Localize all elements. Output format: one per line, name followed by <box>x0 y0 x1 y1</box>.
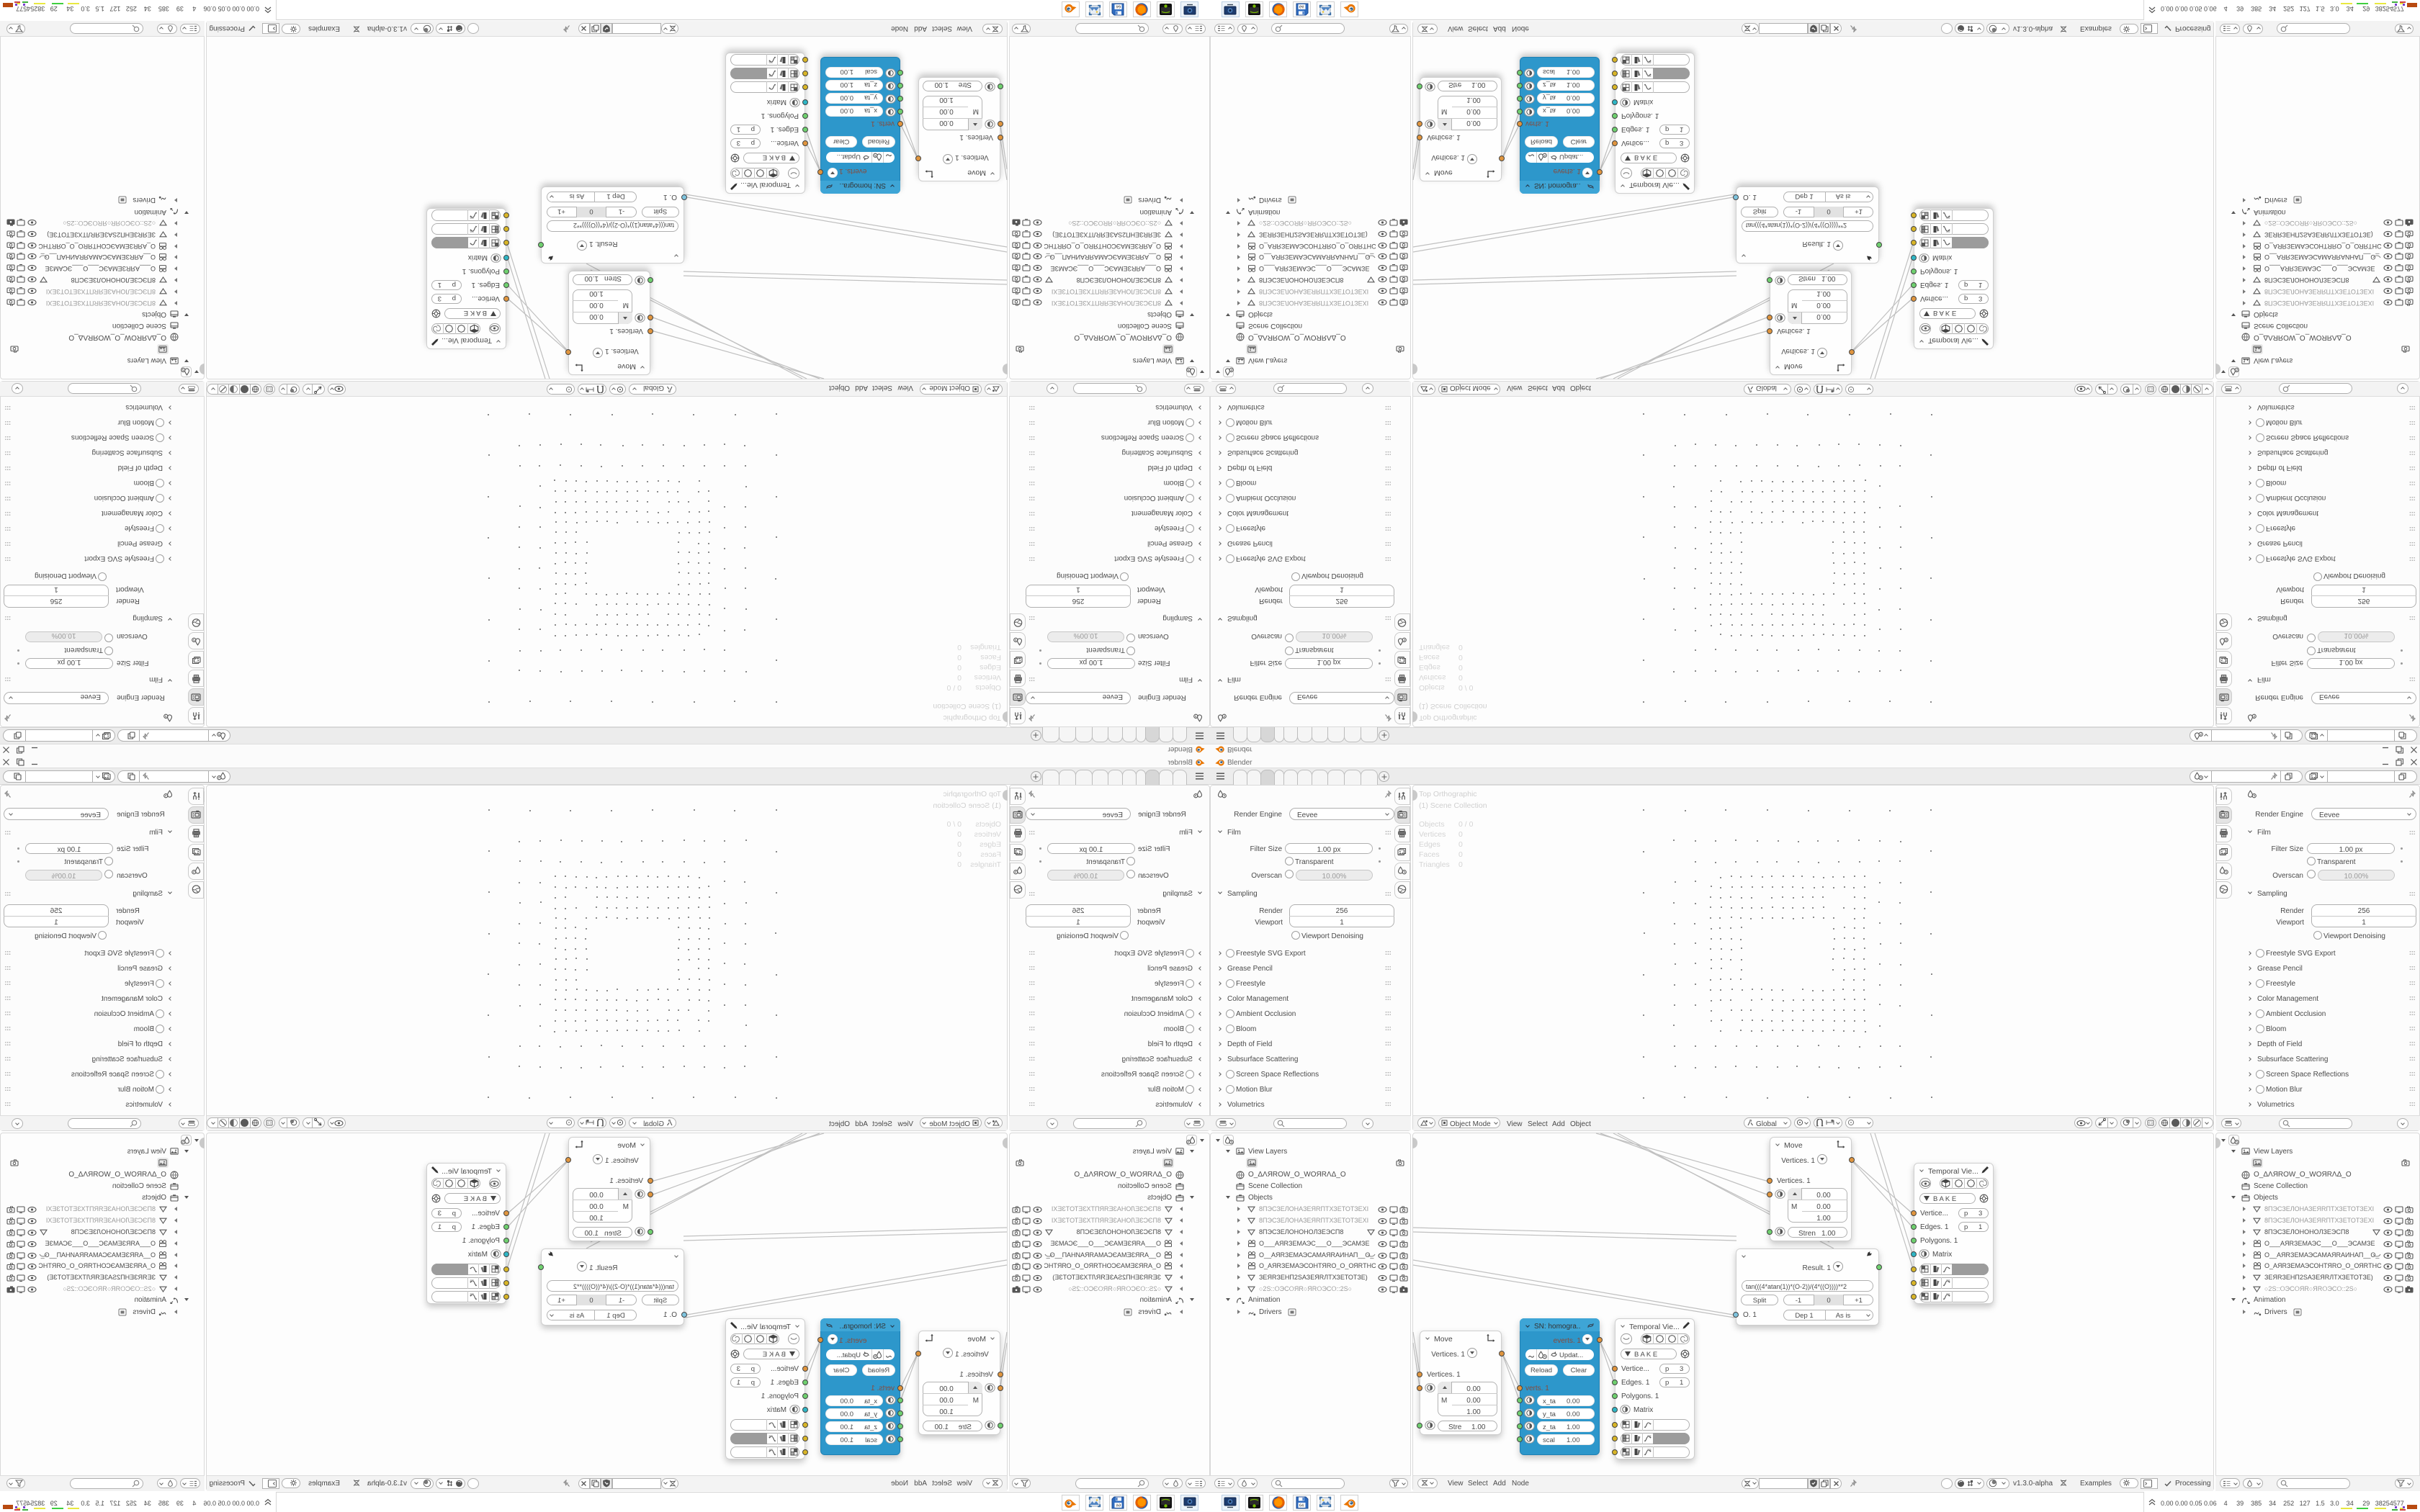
svg-text:64: 64 <box>1116 4 1121 9</box>
svg-text:Dis: Dis <box>1648 1435 1652 1438</box>
svg-text:Dis: Dis <box>1947 1293 1950 1296</box>
svg-text:Dis: Dis <box>1947 230 1950 233</box>
svg-text:Dis: Dis <box>1648 60 1652 63</box>
svg-text:64: 64 <box>1116 1504 1121 1508</box>
svg-text:Dis: Dis <box>1648 1449 1652 1452</box>
svg-text:Dis: Dis <box>768 74 772 77</box>
svg-text:Dis: Dis <box>1947 216 1950 219</box>
svg-text:64: 64 <box>1299 4 1304 9</box>
svg-text:Dis: Dis <box>768 1435 772 1438</box>
svg-text:Dis: Dis <box>768 60 772 63</box>
svg-text:Dis: Dis <box>470 1279 473 1282</box>
svg-text:Dis: Dis <box>470 216 473 219</box>
svg-text:Dis: Dis <box>768 1449 772 1452</box>
svg-text:Dis: Dis <box>1648 74 1652 77</box>
svg-text:64: 64 <box>1299 1504 1304 1508</box>
svg-text:Dis: Dis <box>470 230 473 233</box>
svg-text:Dis: Dis <box>1947 1279 1950 1282</box>
svg-text:Dis: Dis <box>470 1293 473 1296</box>
